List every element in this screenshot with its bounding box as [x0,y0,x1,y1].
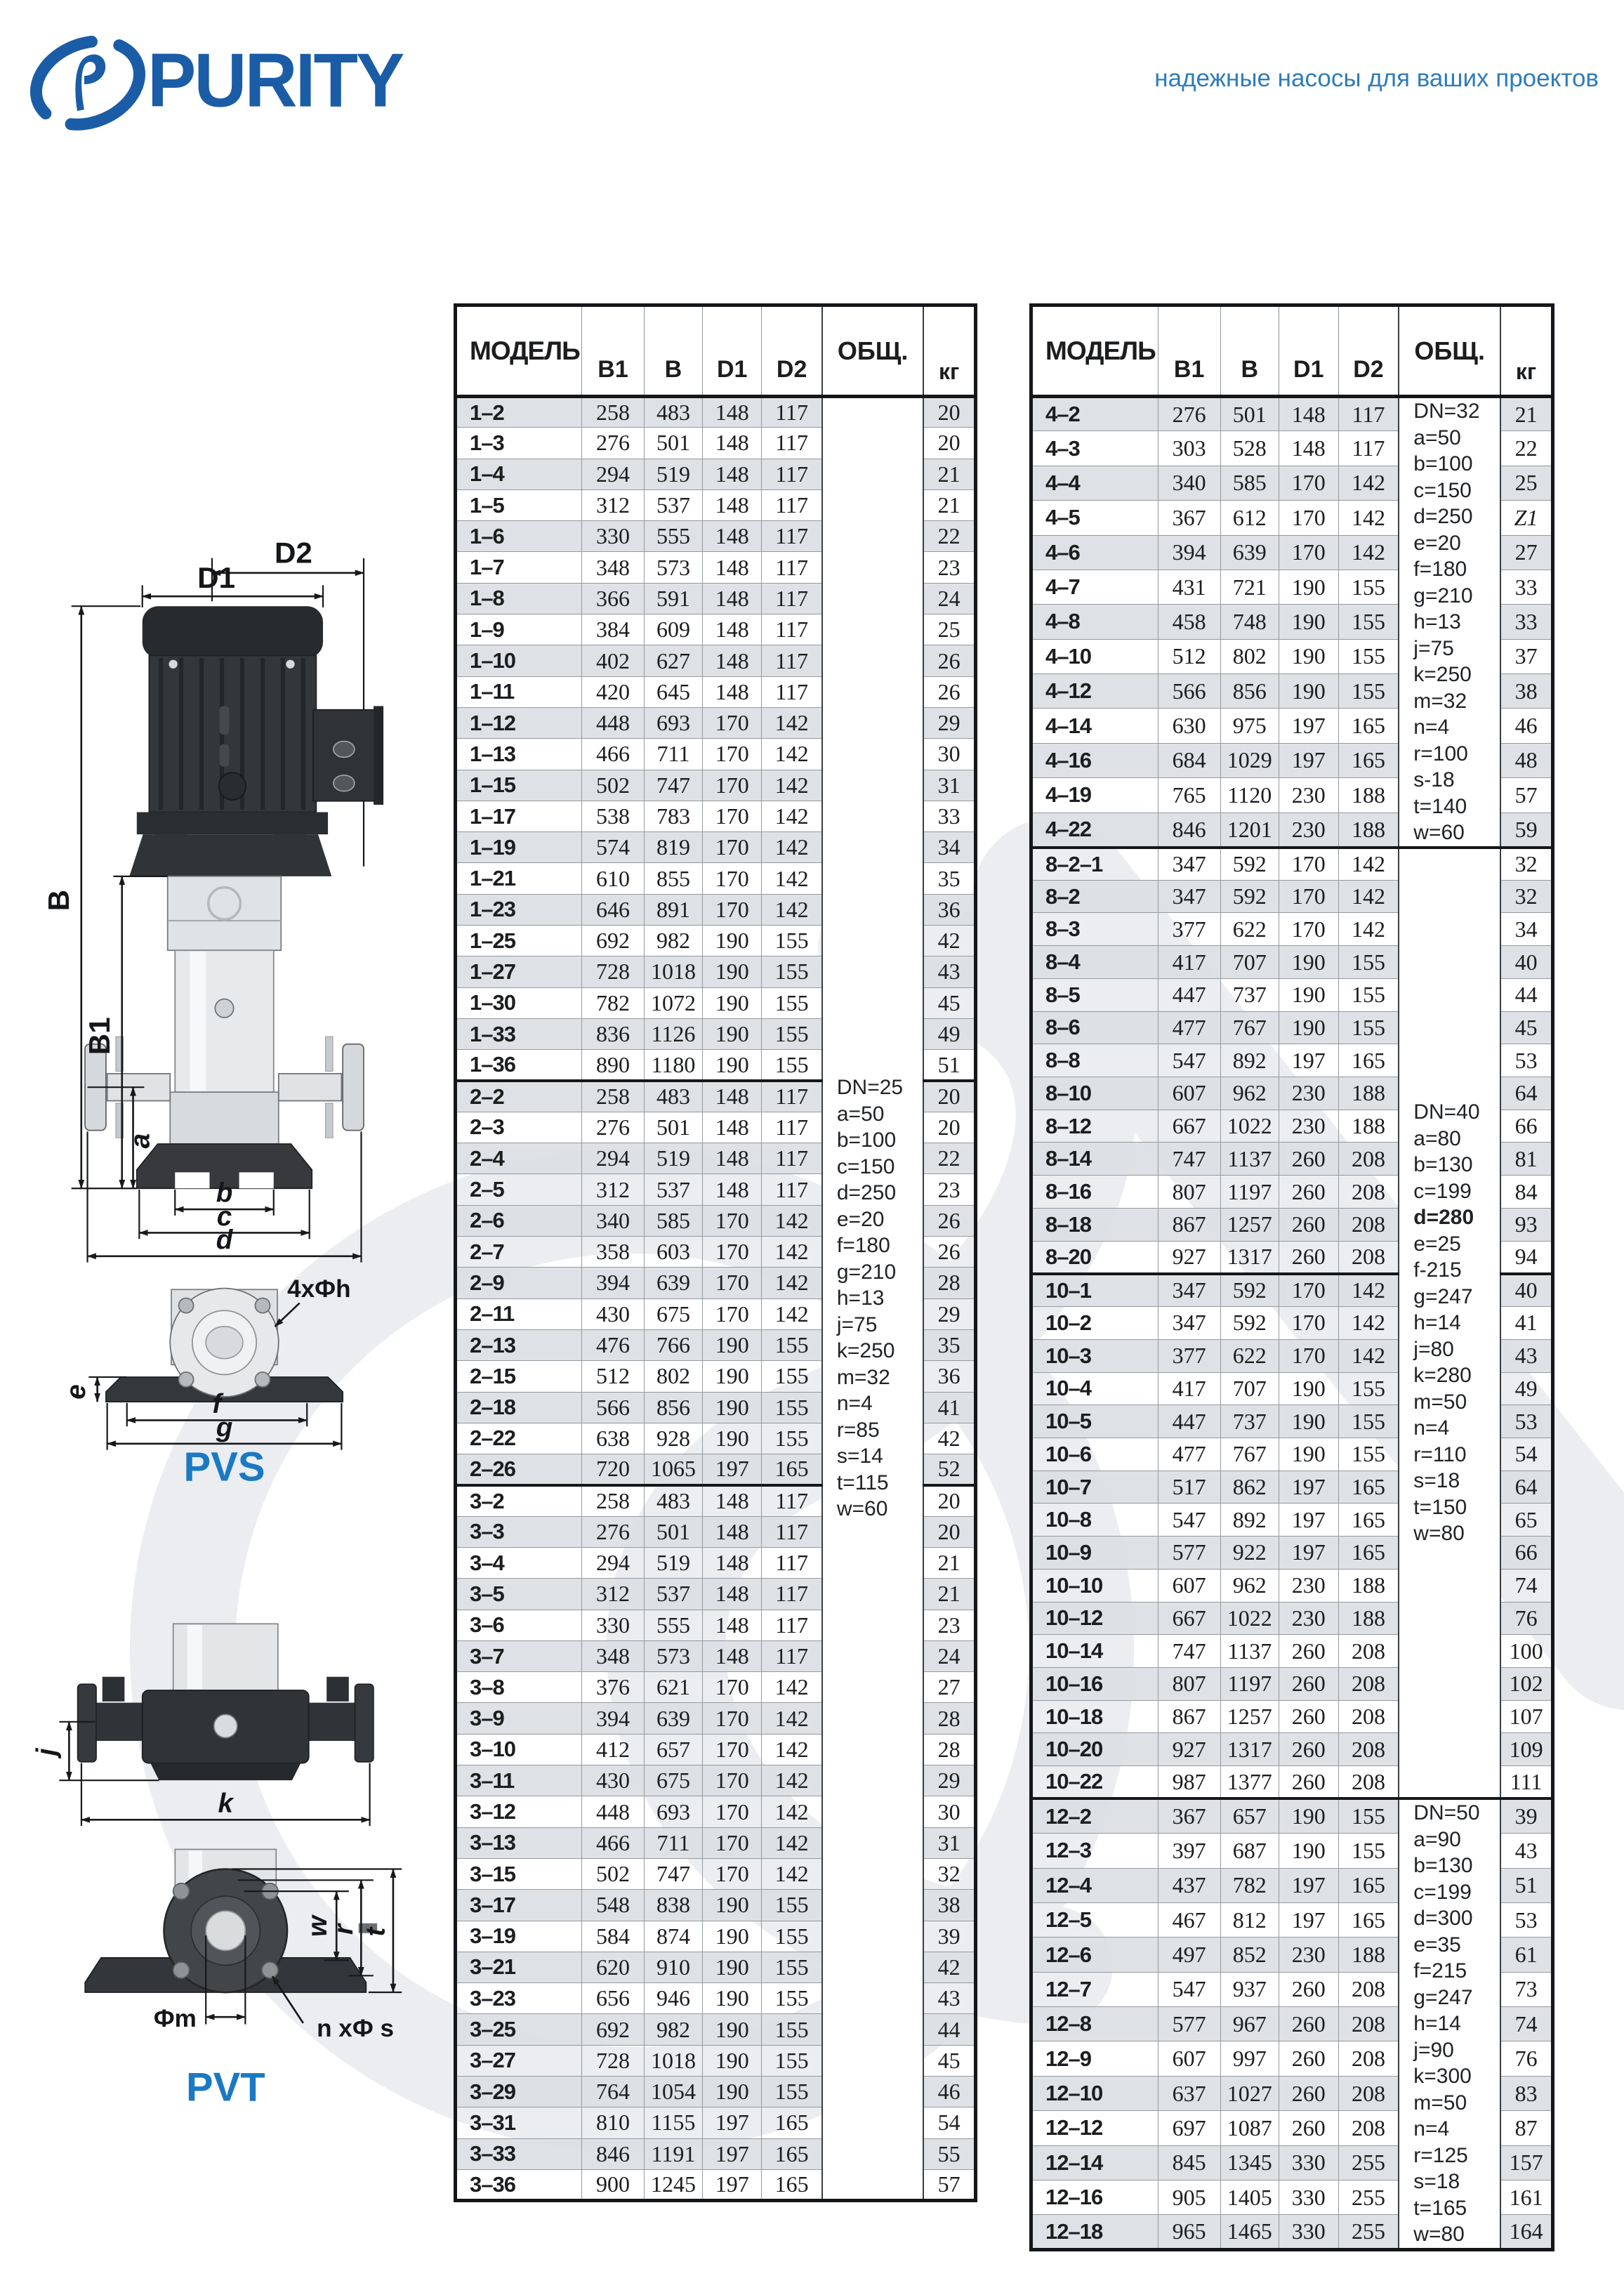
dim-cell: 962 [1220,1569,1279,1602]
dim-cell: 155 [762,956,822,987]
model-cell: 8–4 [1031,946,1158,979]
dim-cell: 807 [1158,1667,1220,1700]
dim-cell: 155 [1338,570,1399,604]
dim-cell: 748 [1220,605,1279,639]
note-line: m=50 [1413,1389,1500,1416]
dim-cell: 890 [582,1050,645,1081]
dim-cell: 260 [1279,1143,1338,1176]
dim-cell: 574 [582,832,645,863]
dim-cell: 431 [1158,570,1220,604]
dim-cell: 117 [1338,397,1399,431]
kg-cell: 102 [1500,1667,1552,1700]
discharge-flange [343,1044,364,1131]
kg-cell: 51 [923,1050,975,1081]
model-cell: 1–21 [456,863,582,894]
model-cell: 4–19 [1031,778,1158,813]
model-cell: 8–2 [1031,880,1158,913]
model-cell: 1–6 [456,521,582,552]
dim-cell: 208 [1338,1176,1399,1209]
dim-cell: 910 [644,1952,702,1982]
pvt-label: PVT [186,2065,265,2108]
note-line: n=4 [1413,1415,1500,1442]
note-line: h=13 [837,1285,923,1312]
notes-text: DN=50a=90b=130c=199d=300e=35f=215g=247h=… [1399,1800,1500,2248]
kg-cell: 64 [1500,1471,1552,1504]
dim-cell: 946 [644,1983,702,2014]
dim-cell: 547 [1158,1504,1220,1537]
dim-cell: 519 [644,459,702,489]
kg-cell: 111 [1500,1766,1552,1799]
dim-cell: 592 [1220,880,1279,913]
dim-label-e: e [61,1384,91,1399]
dim-cell: 117 [762,1610,822,1640]
dim-cell: 637 [1158,2076,1220,2110]
dim-cell: 367 [1158,1798,1220,1833]
dim-cell: 117 [762,459,822,489]
model-cell: 3–6 [456,1610,582,1640]
model-cell: 3–2 [456,1485,582,1516]
dim-cell: 592 [1220,1307,1279,1340]
dim-cell: 573 [644,1640,702,1671]
dim-cell: 377 [1158,1339,1220,1372]
note-line: s=18 [1413,2169,1500,2195]
dim-cell: 1018 [644,2045,702,2076]
model-cell: 1–33 [456,1018,582,1049]
dim-cell: 340 [582,1205,645,1236]
dim-cell: 810 [582,2107,645,2138]
dim-cell: 170 [702,1703,761,1734]
kg-cell: 25 [923,614,975,645]
dim-cell: 720 [582,1454,645,1485]
dim-cell: 117 [1338,431,1399,466]
dim-cell: 657 [644,1734,702,1765]
holes-leader [275,1303,300,1327]
note-line: s=18 [1413,1468,1500,1494]
dim-cell: 190 [702,1921,761,1952]
kg-cell: 21 [923,1547,975,1578]
kg-cell: 43 [923,1983,975,2014]
pump-motor [129,606,383,876]
dim-cell: 260 [1279,1733,1338,1766]
dim-cell: 376 [582,1672,645,1703]
kg-cell: 25 [1500,466,1552,500]
dim-cell: 230 [1279,813,1338,848]
kg-cell: 46 [1500,709,1552,743]
dim-cell: 467 [1158,1902,1220,1937]
dim-cell: 607 [1158,2041,1220,2076]
dim-cell: 585 [644,1205,702,1236]
dim-cell: 117 [762,1143,822,1174]
dim-cell: 190 [702,2045,761,2076]
note-line: e=35 [1413,1932,1500,1959]
model-cell: 1–17 [456,801,582,831]
kg-cell: 42 [923,926,975,956]
dim-cell: 501 [644,1112,702,1143]
dim-cell: 170 [702,1858,761,1889]
dim-cell: 340 [1158,466,1220,500]
dim-cell: 458 [1158,605,1220,639]
dim-cell: 190 [1279,570,1338,604]
dim-cell: 937 [1220,1972,1279,2006]
dim-cell: 737 [1220,1405,1279,1438]
dim-cell: 190 [1279,1834,1338,1868]
model-cell: 3–31 [456,2107,582,2138]
dim-cell: 417 [1158,1372,1220,1405]
model-cell: 8–5 [1031,978,1158,1011]
dim-cell: 312 [582,489,645,520]
kg-cell: 66 [1500,1537,1552,1570]
dim-label-b1: B1 [83,1017,116,1055]
dim-cell: 170 [1279,848,1338,881]
dim-cell: 684 [1158,743,1220,777]
dim-cell: 621 [644,1672,702,1703]
dim-cell: 707 [1220,1372,1279,1405]
dim-cell: 165 [1338,709,1399,743]
dim-cell: 711 [644,1827,702,1858]
dim-cell: 852 [1220,1938,1279,1972]
kg-cell: 54 [1500,1438,1552,1471]
dim-cell: 117 [762,645,822,676]
table-row: 8–2–1347592170142DN=40a=80b=130c=199d=28… [1031,848,1553,881]
kg-cell: 31 [923,770,975,801]
kg-cell: 64 [1500,1077,1552,1110]
notes-text: DN=25a=50b=100c=150d=250e=20f=180g=210h=… [823,1074,923,1522]
dim-cell: 148 [702,1174,761,1205]
kg-cell: 51 [1500,1868,1552,1902]
kg-cell: 76 [1500,1602,1552,1635]
dim-cell: 165 [1338,1471,1399,1504]
dim-cell: 148 [702,397,761,428]
dim-cell: 155 [762,1392,822,1423]
dim-cell: 547 [1158,1044,1220,1077]
dim-cell: 190 [702,987,761,1018]
dim-cell: 537 [644,1579,702,1610]
dim-cell: 538 [582,801,645,831]
dim-cell: 483 [644,1081,702,1112]
note-line: k=280 [1413,1362,1500,1389]
model-cell: 1–10 [456,645,582,676]
dim-cell: 347 [1158,848,1220,881]
dim-cell: 1126 [644,1018,702,1049]
dim-cell: 117 [762,1547,822,1578]
kg-cell: 43 [1500,1339,1552,1372]
kg-cell: 57 [1500,778,1552,813]
model-cell: 8–18 [1031,1208,1158,1241]
kg-cell: 39 [1500,1798,1552,1833]
dim-cell: 165 [1338,1868,1399,1902]
note-line: DN=32 [1413,398,1500,425]
table-row: 4–2276501148117DN=32a=50b=100c=150d=250e… [1031,397,1553,431]
model-cell: 12–10 [1031,2076,1158,2110]
dim-cell: 845 [1158,2145,1220,2180]
col-header-kg: кг [1500,305,1552,397]
dim-cell: 276 [582,1112,645,1143]
dim-cell: 230 [1279,1077,1338,1110]
dim-cell: 412 [582,1734,645,1765]
col-header-d1: D1 [1279,305,1338,397]
dim-cell: 258 [582,1081,645,1112]
dim-label-d2: D2 [275,537,312,570]
spec-table-right: МОДЕЛЬB1BD1D2ОБЩ.кг4–2276501148117DN=32a… [1029,303,1554,2251]
dim-cell: 117 [762,676,822,707]
model-cell: 3–27 [456,2045,582,2076]
kg-cell: 164 [1500,2215,1552,2250]
kg-cell: 32 [1500,848,1552,881]
kg-cell: 26 [923,676,975,707]
dim-cell: 330 [1279,2180,1338,2214]
dim-cell: 721 [1220,570,1279,604]
dim-cell: 394 [1158,535,1220,570]
kg-cell: 31 [923,1827,975,1858]
dim-cell: 592 [1220,848,1279,881]
dim-cell: 170 [1279,913,1338,946]
dim-cell: 622 [1220,1339,1279,1372]
model-cell: 1–2 [456,397,582,428]
dim-cell: 165 [762,2107,822,2138]
dim-cell: 402 [582,645,645,676]
note-line: t=165 [1413,2195,1500,2222]
dim-cell: 348 [582,1640,645,1671]
dim-cell: 190 [702,2077,761,2107]
model-cell: 10–6 [1031,1438,1158,1471]
note-line: r=110 [1413,1442,1500,1468]
note-line: b=130 [1413,1152,1500,1178]
dim-cell: 1317 [1220,1241,1279,1274]
kg-cell: 24 [923,583,975,614]
dim-cell: 170 [702,863,761,894]
dim-cell: 610 [582,863,645,894]
kg-cell: 48 [1500,743,1552,777]
dim-cell: 148 [702,428,761,459]
dim-cell: 867 [1158,1208,1220,1241]
dim-cell: 1197 [1220,1667,1279,1700]
kg-cell: 26 [923,1205,975,1236]
dim-cell: 170 [702,1765,761,1796]
dim-cell: 197 [702,1454,761,1485]
kg-cell: 30 [923,1796,975,1827]
model-cell: 3–11 [456,1765,582,1796]
dim-cell: 607 [1158,1569,1220,1602]
dim-cell: 1257 [1220,1208,1279,1241]
dim-cell: 592 [1220,1274,1279,1307]
dim-cell: 117 [762,1081,822,1112]
note-line: f=180 [837,1232,923,1259]
dim-cell: 190 [1279,639,1338,673]
note-line: f=180 [1413,556,1500,583]
dim-cell: 197 [1279,1868,1338,1902]
model-cell: 1–23 [456,894,582,925]
model-cell: 12–9 [1031,2041,1158,2076]
note-line: c=150 [1413,478,1500,504]
dim-cell: 190 [1279,1438,1338,1471]
note-line: c=199 [1413,1879,1500,1906]
dim-cell: 142 [1338,466,1399,500]
dim-cell: 190 [1279,1798,1338,1833]
model-cell: 2–5 [456,1174,582,1205]
dim-label-g: g [216,1412,233,1442]
note-line: DN=40 [1413,1099,1500,1126]
dim-cell: 255 [1338,2180,1399,2214]
note-line: m=32 [837,1364,923,1391]
dim-cell: 767 [1220,1438,1279,1471]
dim-cell: 782 [1220,1868,1279,1902]
dim-cell: 155 [1338,978,1399,1011]
holes-label: 4xФh [287,1275,350,1303]
dim-cell: 573 [644,552,702,583]
dim-cell: 330 [1279,2145,1338,2180]
dim-label-t: t [361,1926,391,1936]
dim-cell: 148 [702,1547,761,1578]
model-cell: 1–3 [456,428,582,459]
kg-cell: 33 [1500,570,1552,604]
dim-cell: 838 [644,1890,702,1921]
dim-cell: 165 [1338,1504,1399,1537]
note-line: e=25 [1413,1231,1500,1258]
dim-cell: 675 [644,1765,702,1796]
dim-cell: 255 [1338,2145,1399,2180]
model-cell: 4–14 [1031,709,1158,743]
kg-cell: 22 [923,521,975,552]
dim-cell: 155 [762,1952,822,1982]
model-cell: 1–27 [456,956,582,987]
dim-cell: 190 [1279,946,1338,979]
dim-cell: 330 [582,1610,645,1640]
model-cell: 4–3 [1031,431,1158,466]
model-cell: 2–18 [456,1392,582,1423]
model-cell: 4–6 [1031,535,1158,570]
dim-cell: 208 [1338,1667,1399,1700]
dim-cell: 782 [582,987,645,1018]
dim-cell: 170 [1279,535,1338,570]
dim-cell: 962 [1220,1077,1279,1110]
note-line: k=250 [837,1338,923,1364]
dim-cell: 170 [702,1268,761,1298]
kg-cell: 35 [923,1329,975,1360]
dim-cell: 190 [702,1423,761,1454]
dim-cell: 512 [582,1361,645,1392]
dim-cell: 437 [1158,1868,1220,1902]
note-line: f-215 [1413,1257,1500,1284]
col-header-model: МОДЕЛЬ [456,305,582,397]
note-line: c=199 [1413,1178,1500,1205]
dim-cell: 577 [1158,1537,1220,1570]
dim-cell: 1054 [644,2077,702,2107]
kg-cell: 34 [1500,913,1552,946]
kg-cell: 107 [1500,1700,1552,1733]
note-line: g=247 [1413,1985,1500,2011]
dim-cell: 155 [1338,1372,1399,1405]
model-cell: 3–36 [456,2169,582,2200]
dim-cell: 548 [582,1890,645,1921]
dim-cell: 197 [1279,1504,1338,1537]
dim-cell: 165 [762,2138,822,2169]
dim-cell: 1087 [1220,2111,1279,2145]
dim-cell: 260 [1279,1700,1338,1733]
dim-cell: 260 [1279,2041,1338,2076]
model-cell: 3–10 [456,1734,582,1765]
kg-cell: 35 [923,863,975,894]
kg-cell: 27 [923,1672,975,1703]
dim-cell: 639 [644,1703,702,1734]
dim-cell: 501 [644,1516,702,1547]
dim-cell: 675 [644,1298,702,1329]
kg-cell: 43 [1500,1834,1552,1868]
model-cell: 3–7 [456,1640,582,1671]
dim-cell: 230 [1279,778,1338,813]
model-cell: 10–8 [1031,1504,1158,1537]
dim-cell: 255 [1338,2215,1399,2250]
kg-cell: 32 [923,1858,975,1889]
dim-cell: 922 [1220,1537,1279,1570]
notes-cell: DN=40a=80b=130c=199d=280e=25f-215g=247h=… [1399,848,1500,1799]
note-line: a=50 [837,1101,923,1128]
dim-cell: 377 [1158,913,1220,946]
dim-cell: 190 [702,926,761,956]
dim-cell: 155 [1338,1011,1399,1044]
dim-cell: 330 [1279,2215,1338,2250]
dim-cell: 117 [762,1640,822,1671]
model-cell: 4–16 [1031,743,1158,777]
spec-table-left: МОДЕЛЬB1BD1D2ОБЩ.кг1–2258483148117DN=25a… [454,303,977,2202]
note-line: d=300 [1413,1905,1500,1932]
dim-cell: 846 [582,2138,645,2169]
dim-cell: 142 [762,707,822,738]
dim-cell: 258 [582,1485,645,1516]
dim-cell: 208 [1338,1972,1399,2006]
col-header-b1: B1 [1158,305,1220,397]
kg-cell: 22 [923,1143,975,1174]
dim-cell: 190 [1279,1372,1338,1405]
dim-cell: 190 [702,1050,761,1081]
dim-cell: 577 [1158,2007,1220,2041]
dim-cell: 142 [762,1298,822,1329]
dim-cell: 927 [1158,1241,1220,1274]
dim-cell: 982 [644,926,702,956]
kg-cell: 66 [1500,1110,1552,1143]
model-cell: 1–15 [456,770,582,801]
dim-cell: 483 [644,397,702,428]
dim-cell: 447 [1158,1405,1220,1438]
purity-logo-icon [28,28,147,133]
kg-cell: 20 [923,1516,975,1547]
dim-cell: 807 [1158,1176,1220,1209]
dim-cell: 142 [762,1205,822,1236]
dim-cell: 190 [1279,1405,1338,1438]
model-cell: 4–22 [1031,813,1158,848]
note-line: d=280 [1413,1204,1500,1231]
note-line: a=50 [1413,425,1500,452]
dim-cell: 892 [1220,1504,1279,1537]
dim-cell: 1245 [644,2169,702,2200]
tagline: надежные насосы для ваших проектов [1154,65,1599,93]
note-line: e=20 [1413,530,1500,557]
pvt-holes-label: n xФ s [317,2015,394,2042]
kg-cell: 65 [1500,1504,1552,1537]
note-line: h=14 [1413,2011,1500,2037]
note-line: n=4 [837,1390,923,1417]
dim-label-r: r [329,1923,359,1935]
pvt-flange-view [85,1849,377,1992]
note-line: g=210 [1413,583,1500,610]
model-cell: 10–14 [1031,1635,1158,1668]
kg-cell: 81 [1500,1143,1552,1176]
dim-cell: 566 [1158,674,1220,709]
kg-cell: 157 [1500,2145,1552,2180]
dim-cell: 230 [1279,1602,1338,1635]
dim-cell: 260 [1279,1176,1338,1209]
dim-cell: 188 [1338,1602,1399,1635]
dim-cell: 148 [702,521,761,552]
